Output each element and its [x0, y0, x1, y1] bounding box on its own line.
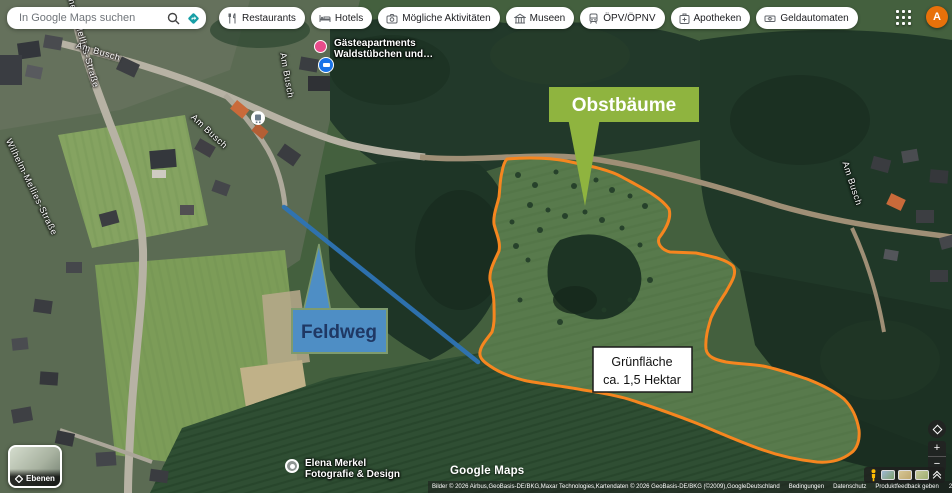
tilt-compass-button[interactable]	[928, 420, 946, 438]
link-privacy[interactable]: Datenschutz	[833, 484, 866, 490]
collapse-chevron-icon[interactable]	[934, 472, 940, 478]
gruenflaeche-line1: Grünfläche	[611, 355, 672, 369]
category-pills: Restaurants Hotels Mögliche Aktivitäten …	[219, 7, 858, 29]
imagery-thumbnail[interactable]	[915, 470, 929, 480]
attribution-bar: Bilder © 2026 Airbus,GeoBasis-DE/BKG,Max…	[428, 481, 952, 493]
link-terms[interactable]: Bedingungen	[789, 484, 824, 490]
pill-museums[interactable]: Museen	[506, 7, 575, 29]
transit-icon	[588, 13, 599, 24]
compass-icon	[932, 424, 942, 434]
search-input[interactable]	[19, 12, 161, 24]
lodging-marker[interactable]	[318, 57, 334, 73]
hotel-price-marker[interactable]	[314, 40, 327, 53]
pill-pharmacies[interactable]: Apotheken	[671, 7, 751, 29]
link-country[interactable]: Deutschland	[746, 484, 779, 490]
hotel-icon	[319, 13, 331, 24]
layers-button[interactable]: Ebenen	[8, 445, 62, 488]
poi-label-photographer[interactable]: Elena Merkel Fotografie & Design	[305, 458, 400, 480]
gruenflaeche-line2: ca. 1,5 Hektar	[603, 373, 681, 387]
obstbaeume-label: Obstbäume	[572, 95, 677, 116]
pill-restaurants[interactable]: Restaurants	[219, 7, 305, 29]
google-apps-icon[interactable]	[896, 10, 912, 26]
photographer-marker[interactable]	[285, 459, 299, 473]
museum-icon	[514, 13, 526, 24]
account-avatar[interactable]: A	[926, 6, 948, 28]
camera-icon	[386, 13, 398, 24]
pill-hotels[interactable]: Hotels	[311, 7, 372, 29]
google-maps-watermark: Google Maps	[450, 465, 524, 477]
poi-label-guest-apartments[interactable]: Gästeapartments Waldstübchen und…	[334, 38, 433, 60]
pill-activities[interactable]: Mögliche Aktivitäten	[378, 7, 499, 29]
feldweg-label: Feldweg	[301, 322, 377, 343]
pill-atms[interactable]: Geldautomaten	[756, 7, 857, 29]
directions-icon[interactable]	[186, 11, 201, 26]
satellite-map[interactable]: Obstbäume Feldweg Grünfläche ca. 1,5 Hek…	[0, 0, 952, 493]
search-icon[interactable]	[167, 11, 180, 26]
layers-label: Ebenen	[26, 474, 55, 483]
pegman-icon[interactable]	[869, 469, 878, 482]
imagery-thumbnail[interactable]	[881, 470, 895, 480]
atm-icon	[764, 13, 776, 24]
pharmacy-icon	[679, 13, 690, 24]
gruenflaeche-box: Grünfläche ca. 1,5 Hektar	[593, 347, 692, 392]
restaurant-icon	[227, 13, 238, 24]
map-attribution: Bilder © 2026 Airbus,GeoBasis-DE/BKG,Max…	[432, 484, 746, 490]
link-feedback[interactable]: Produktfeedback geben	[875, 484, 938, 490]
zoom-in-button[interactable]: +	[928, 441, 946, 457]
search-bar	[7, 7, 206, 29]
google-maps-app: Obstbäume Feldweg Grünfläche ca. 1,5 Hek…	[0, 0, 952, 493]
layers-icon	[15, 475, 23, 483]
bus-stop-marker[interactable]	[251, 111, 265, 125]
pill-transit[interactable]: ÖPV/ÖPNV	[580, 7, 664, 29]
imagery-thumbnail[interactable]	[898, 470, 912, 480]
